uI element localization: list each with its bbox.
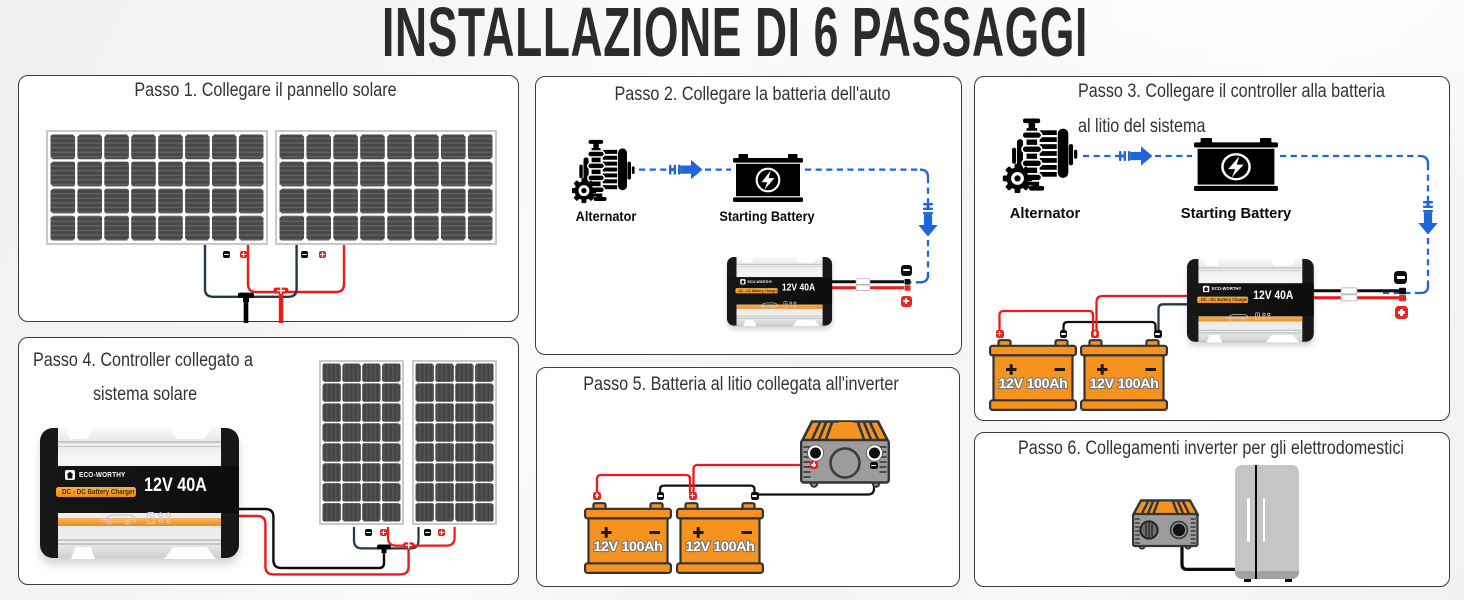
svg-text:12V 100Ah: 12V 100Ah xyxy=(998,376,1067,392)
svg-text:12V 100Ah: 12V 100Ah xyxy=(1089,376,1158,392)
svg-text:12V 100Ah: 12V 100Ah xyxy=(685,539,754,555)
svg-text:12V 100Ah: 12V 100Ah xyxy=(593,539,662,555)
